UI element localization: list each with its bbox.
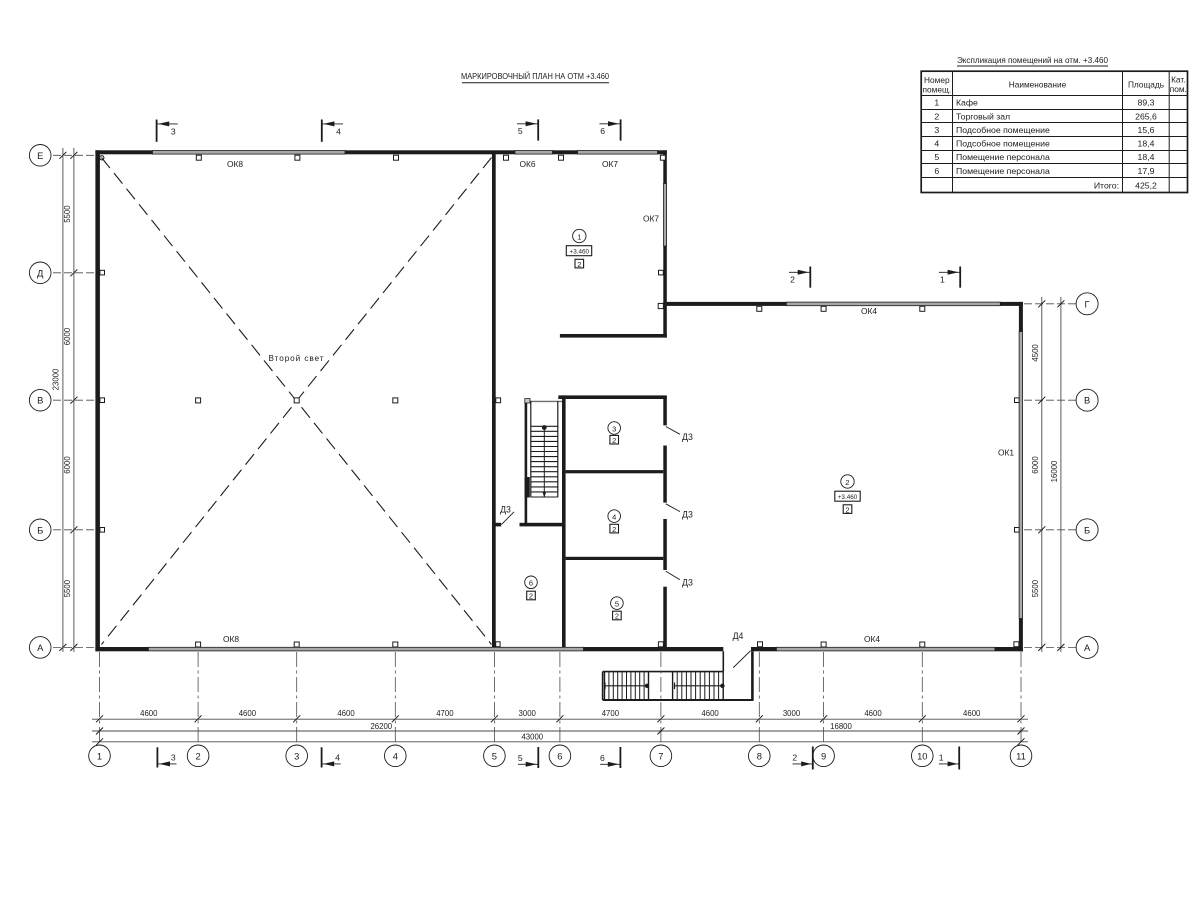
svg-text:А: А — [1084, 642, 1091, 653]
svg-text:3000: 3000 — [783, 709, 801, 718]
svg-text:1: 1 — [940, 275, 945, 285]
svg-text:2: 2 — [845, 478, 849, 487]
svg-text:265,6: 265,6 — [1135, 111, 1157, 121]
svg-text:6: 6 — [600, 126, 605, 136]
svg-text:5: 5 — [615, 599, 619, 608]
svg-text:6: 6 — [600, 753, 605, 763]
svg-text:4600: 4600 — [864, 709, 882, 718]
svg-text:1: 1 — [934, 98, 939, 108]
svg-text:А: А — [37, 642, 44, 653]
svg-text:5: 5 — [518, 753, 523, 763]
svg-text:4600: 4600 — [239, 709, 257, 718]
svg-text:89,3: 89,3 — [1138, 98, 1155, 108]
svg-text:16800: 16800 — [830, 722, 852, 731]
svg-text:Д3: Д3 — [682, 432, 693, 442]
svg-text:9: 9 — [821, 750, 826, 761]
svg-text:1: 1 — [577, 232, 581, 241]
svg-text:4600: 4600 — [701, 709, 719, 718]
svg-text:6: 6 — [934, 166, 939, 176]
svg-text:Итого:: Итого: — [1094, 181, 1119, 191]
svg-text:6000: 6000 — [63, 456, 72, 474]
svg-text:2: 2 — [845, 505, 849, 514]
svg-text:Кафе: Кафе — [956, 98, 978, 108]
svg-text:ОК8: ОК8 — [227, 159, 243, 169]
svg-text:Номер: Номер — [924, 75, 950, 85]
svg-text:4500: 4500 — [1031, 344, 1040, 362]
svg-text:В: В — [37, 395, 43, 406]
svg-text:1: 1 — [939, 753, 944, 763]
svg-text:Помещение персонала: Помещение персонала — [956, 152, 1050, 162]
svg-text:15,6: 15,6 — [1138, 125, 1155, 135]
svg-text:2: 2 — [612, 436, 616, 445]
svg-text:ОК6: ОК6 — [519, 159, 535, 169]
svg-text:1: 1 — [97, 750, 102, 761]
svg-text:2: 2 — [195, 750, 200, 761]
svg-text:5: 5 — [492, 750, 497, 761]
svg-text:+3.460: +3.460 — [570, 249, 590, 255]
svg-text:ОК8: ОК8 — [223, 634, 239, 644]
svg-text:Е: Е — [37, 150, 43, 161]
svg-text:Д: Д — [37, 267, 44, 278]
svg-text:Д3: Д3 — [682, 509, 693, 519]
svg-text:3000: 3000 — [519, 709, 537, 718]
svg-text:5: 5 — [934, 152, 939, 162]
svg-text:6: 6 — [557, 750, 562, 761]
svg-text:Кат.: Кат. — [1171, 75, 1185, 85]
svg-text:2: 2 — [577, 260, 581, 269]
svg-text:10: 10 — [917, 750, 927, 761]
svg-text:5500: 5500 — [63, 579, 72, 597]
svg-text:4700: 4700 — [436, 709, 454, 718]
svg-text:8: 8 — [757, 750, 762, 761]
svg-text:18,4: 18,4 — [1138, 152, 1155, 162]
svg-text:4: 4 — [612, 512, 616, 521]
svg-text:помещ.: помещ. — [923, 85, 952, 95]
svg-text:4600: 4600 — [140, 709, 158, 718]
svg-text:2: 2 — [792, 753, 797, 763]
svg-text:Д3: Д3 — [682, 578, 693, 588]
svg-text:43000: 43000 — [521, 733, 543, 742]
svg-text:6: 6 — [529, 579, 533, 588]
svg-text:2: 2 — [934, 111, 939, 121]
svg-text:Д3: Д3 — [500, 505, 511, 515]
svg-text:2: 2 — [790, 275, 795, 285]
svg-text:3: 3 — [934, 125, 939, 135]
svg-text:5500: 5500 — [63, 205, 72, 223]
svg-text:4700: 4700 — [602, 709, 620, 718]
svg-text:26200: 26200 — [370, 722, 392, 731]
svg-text:3: 3 — [294, 750, 299, 761]
svg-text:ОК4: ОК4 — [864, 634, 880, 644]
svg-text:4: 4 — [393, 750, 398, 761]
svg-text:5500: 5500 — [1031, 579, 1040, 597]
svg-text:3: 3 — [171, 126, 176, 136]
svg-text:3: 3 — [612, 424, 616, 433]
svg-text:4600: 4600 — [337, 709, 355, 718]
svg-text:2: 2 — [612, 525, 616, 534]
svg-text:ОК7: ОК7 — [602, 159, 618, 169]
svg-text:МАРКИРОВОЧНЫЙ ПЛАН НА ОТМ +3.4: МАРКИРОВОЧНЫЙ ПЛАН НА ОТМ +3.460 — [461, 70, 609, 81]
svg-text:425,2: 425,2 — [1135, 181, 1157, 191]
svg-text:ОК4: ОК4 — [861, 306, 877, 316]
svg-text:3: 3 — [171, 753, 176, 763]
svg-text:Подсобное помещение: Подсобное помещение — [956, 139, 1050, 149]
svg-text:ОК7: ОК7 — [643, 214, 659, 224]
svg-text:4: 4 — [934, 139, 939, 149]
svg-text:2: 2 — [615, 612, 619, 621]
svg-text:2: 2 — [529, 592, 533, 601]
svg-text:Площадь: Площадь — [1128, 80, 1164, 90]
svg-text:Второй свет: Второй свет — [269, 354, 324, 363]
svg-text:Подсобное помещение: Подсобное помещение — [956, 125, 1050, 135]
svg-text:ОК1: ОК1 — [998, 448, 1014, 458]
svg-text:В: В — [1084, 395, 1090, 406]
svg-text:Помещение персонала: Помещение персонала — [956, 166, 1050, 176]
svg-text:23000: 23000 — [52, 368, 61, 390]
svg-text:Торговый зал: Торговый зал — [956, 111, 1010, 121]
svg-text:пом.: пом. — [1170, 84, 1187, 94]
svg-text:Наименование: Наименование — [1009, 80, 1067, 90]
svg-text:18,4: 18,4 — [1138, 139, 1155, 149]
svg-text:+3.460: +3.460 — [838, 495, 858, 501]
svg-text:Б: Б — [1084, 524, 1090, 535]
svg-text:17,9: 17,9 — [1138, 166, 1155, 176]
svg-text:4600: 4600 — [963, 709, 981, 718]
svg-text:7: 7 — [658, 750, 663, 761]
svg-text:4: 4 — [335, 753, 340, 763]
svg-text:Экспликация помещений на отм.: Экспликация помещений на отм. +3.460 — [957, 55, 1108, 65]
svg-text:6000: 6000 — [63, 327, 72, 345]
svg-text:11: 11 — [1016, 750, 1026, 761]
svg-text:Г: Г — [1085, 298, 1090, 309]
svg-text:6000: 6000 — [1031, 456, 1040, 474]
svg-text:Б: Б — [37, 524, 43, 535]
svg-text:16000: 16000 — [1050, 460, 1059, 482]
svg-text:4: 4 — [336, 126, 341, 136]
svg-text:Д4: Д4 — [733, 631, 744, 641]
svg-text:5: 5 — [518, 126, 523, 136]
